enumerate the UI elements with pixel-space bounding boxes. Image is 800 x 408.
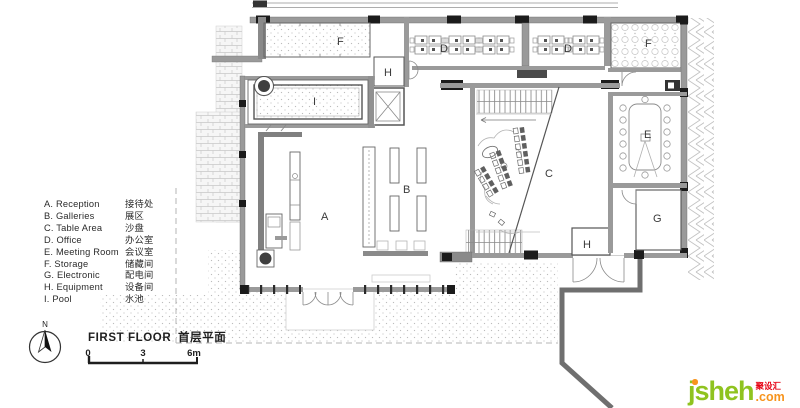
scale-bar: 0 3 6m <box>85 348 201 363</box>
room-equipment-bottom <box>572 228 610 255</box>
room-electronic <box>622 190 681 250</box>
legend-row: H. Equipment设备间 <box>44 282 154 294</box>
door-arc <box>622 72 636 86</box>
legend-zh: 设备间 <box>125 282 154 294</box>
room-label-office-2: D <box>564 43 572 55</box>
door-arc <box>600 258 624 282</box>
north-arrow: N <box>30 320 61 363</box>
room-label-electronic: G <box>653 213 662 225</box>
floor-plan-page: F H D D F I A B C E G H N FIRST FLOOR 首层… <box>0 0 800 408</box>
legend-row: A. Reception接待处 <box>44 199 154 211</box>
room-label-storage-1: F <box>337 36 344 48</box>
logo-wordmark: jsheh <box>688 378 754 404</box>
gallery-displays <box>290 147 430 282</box>
legend-zh: 储藏间 <box>125 259 154 271</box>
door-arc <box>622 190 636 204</box>
scale-tick-3: 3 <box>140 348 145 359</box>
legend-row: C. Table Area沙盘 <box>44 223 154 235</box>
legend-row: F. Storage储藏间 <box>44 259 154 271</box>
legend-en: I. Pool <box>44 294 125 306</box>
legend-zh: 接待处 <box>125 199 154 211</box>
room-label-equipment-2: H <box>583 239 591 251</box>
room-label-galleries: B <box>403 184 410 196</box>
legend-en: E. Meeting Room <box>44 247 125 259</box>
room-label-office-1: D <box>440 43 448 55</box>
room-pool <box>248 77 368 125</box>
site-hatch-right <box>688 18 714 280</box>
site-boundary-wall <box>562 258 640 408</box>
legend-en: A. Reception <box>44 199 125 211</box>
room-label-equipment-1: H <box>384 67 392 79</box>
legend-row: I. Pool水池 <box>44 294 154 306</box>
legend-row: B. Galleries展区 <box>44 211 154 223</box>
door-arc <box>573 258 597 282</box>
logo-dot-icon <box>692 379 698 385</box>
room-label-reception: A <box>321 211 329 223</box>
legend: A. Reception接待处 B. Galleries展区 C. Table … <box>44 199 154 306</box>
room-label-storage-2: F <box>645 38 652 50</box>
legend-en: G. Electronic <box>44 270 125 282</box>
room-equipment-top <box>374 57 418 86</box>
legend-row: G. Electronic配电间 <box>44 270 154 282</box>
reception-desk <box>266 214 282 248</box>
site-retaining-top <box>252 1 618 8</box>
legend-en: C. Table Area <box>44 223 125 235</box>
legend-en: D. Office <box>44 235 125 247</box>
logo-tld: .com <box>756 391 785 403</box>
room-label-meeting: E <box>644 129 651 141</box>
legend-row: E. Meeting Room会议室 <box>44 247 154 259</box>
watermark-logo: jsheh 聚设汇 .com <box>688 378 785 404</box>
room-storage-top-left <box>264 23 370 57</box>
legend-zh: 办公室 <box>125 235 154 247</box>
room-label-pool: I <box>313 96 316 108</box>
legend-zh: 配电间 <box>125 270 154 282</box>
legend-en: B. Galleries <box>44 211 125 223</box>
elevator-shaft <box>372 88 404 125</box>
room-label-table-area: C <box>545 168 553 180</box>
legend-zh: 展区 <box>125 211 144 223</box>
legend-en: F. Storage <box>44 259 125 271</box>
scale-tick-6m: 6m <box>187 348 201 359</box>
room-storage-top-right <box>608 23 687 91</box>
north-label: N <box>42 320 48 329</box>
entrance-walk <box>286 289 374 330</box>
legend-row: D. Office办公室 <box>44 235 154 247</box>
plan-title-en: FIRST FLOOR <box>88 332 171 344</box>
legend-zh: 沙盘 <box>125 223 144 235</box>
sand-table-model <box>474 127 530 234</box>
legend-en: H. Equipment <box>44 282 125 294</box>
legend-zh: 水池 <box>125 294 144 306</box>
site-hatch-left <box>196 26 242 222</box>
plaza-paving <box>100 250 558 343</box>
legend-zh: 会议室 <box>125 247 154 259</box>
site-wall-stub <box>212 56 262 62</box>
plan-title-zh: 首层平面 <box>178 330 226 344</box>
planter-circle <box>260 253 272 265</box>
